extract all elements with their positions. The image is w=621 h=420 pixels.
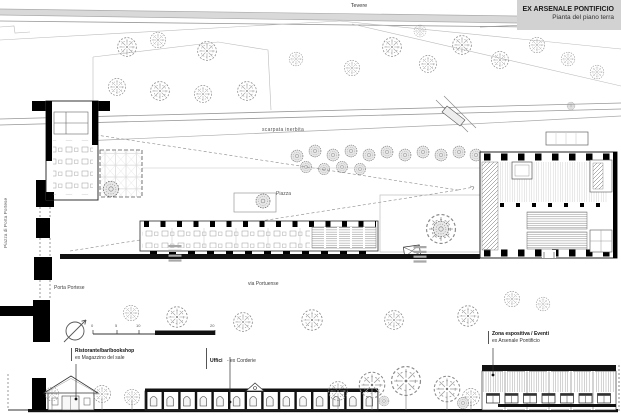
pergola-plan xyxy=(100,150,142,197)
scale-tick-5: 5 xyxy=(115,323,117,328)
site-plan-sheet: EX ARSENALE PONTIFICIO Pianta del piano … xyxy=(0,0,621,420)
embankment-trees xyxy=(109,25,604,110)
restaurant-building-plan xyxy=(46,101,98,200)
legend-exhibition: Zona espositiva / Eventi ex Arsenale Pon… xyxy=(488,331,549,344)
legend-restaurant: Ristorante/bar/bookshop ex Magazzino del… xyxy=(71,348,134,361)
arsenale-elevation xyxy=(482,365,619,412)
via-portuense-label: via Portuense xyxy=(248,281,279,287)
legend-offices-name: Uffici xyxy=(210,358,223,364)
arsenale-building-plan xyxy=(480,152,617,258)
legend-restaurant-name: Ristorante/bar/bookshop xyxy=(75,348,134,355)
north-arrow xyxy=(64,320,86,342)
scale-bar xyxy=(93,330,215,335)
river-label: Tevere xyxy=(336,3,382,9)
scale-tick-0: 0 xyxy=(91,323,93,328)
street-trees xyxy=(123,291,549,331)
legend-offices: Uffici - ex Corderie xyxy=(206,348,256,369)
corderie-elevation xyxy=(145,383,378,410)
sheet-title: EX ARSENALE PONTIFICIO xyxy=(517,5,614,14)
scale-tick-10: 10 xyxy=(136,323,140,328)
legend-exhibition-former: ex Arsenale Pontificio xyxy=(492,338,549,345)
courtyard-plan xyxy=(380,195,480,257)
piazza-porta-portese-label: Piazza di Porta Portese xyxy=(4,198,9,248)
title-block: EX ARSENALE PONTIFICIO Pianta del piano … xyxy=(517,0,621,30)
legend-restaurant-former: ex Magazzino del sale xyxy=(75,355,134,362)
embankment-parcel-lines xyxy=(0,21,621,110)
scale-tick-20: 20 xyxy=(210,323,214,328)
legend-exhibition-name: Zona espositiva / Eventi xyxy=(492,331,549,338)
piazza-tree-row xyxy=(291,145,482,175)
porta-portese-label: Porta Portese xyxy=(54,285,85,291)
sheet-subtitle: Pianta del piano terra xyxy=(517,14,614,21)
legend-offices-former: - ex Corderie xyxy=(227,358,256,364)
piazza-label: Piazza xyxy=(276,191,291,197)
slope-label: scarpata inerbita xyxy=(262,127,304,133)
corderie-building-plan xyxy=(140,193,378,253)
